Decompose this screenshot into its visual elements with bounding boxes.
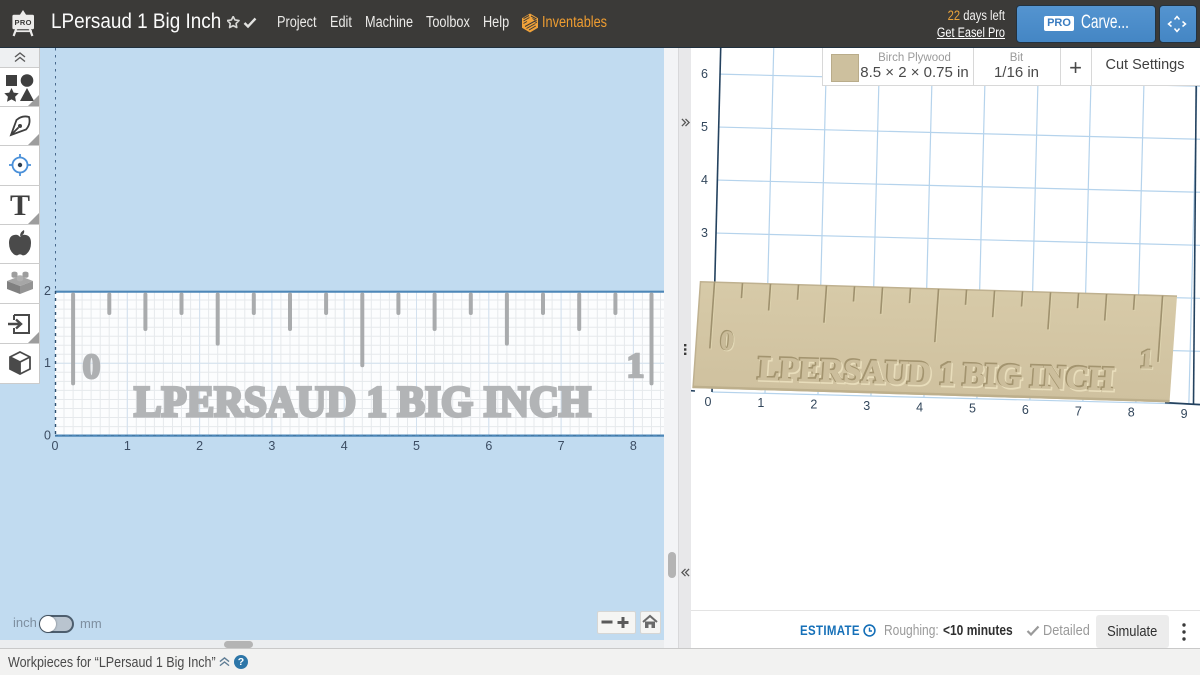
svg-text:2: 2 xyxy=(44,284,51,298)
svg-text:1: 1 xyxy=(1139,344,1155,374)
svg-text:4: 4 xyxy=(701,173,708,187)
svg-text:4: 4 xyxy=(916,400,923,414)
svg-text:4: 4 xyxy=(341,439,348,453)
svg-text:PRO: PRO xyxy=(14,18,31,27)
svg-text:0: 0 xyxy=(719,325,735,355)
svg-text:6: 6 xyxy=(701,67,708,81)
svg-text:3: 3 xyxy=(701,226,708,240)
svg-text:9: 9 xyxy=(1181,407,1188,421)
svg-text:T: T xyxy=(10,189,30,222)
svg-text:6: 6 xyxy=(485,439,492,453)
svg-text:2: 2 xyxy=(196,439,203,453)
svg-text:1: 1 xyxy=(124,439,131,453)
svg-text:1: 1 xyxy=(757,396,764,410)
svg-text:8: 8 xyxy=(1128,406,1135,420)
svg-text:5: 5 xyxy=(701,120,708,134)
svg-text:0: 0 xyxy=(52,439,59,453)
svg-text:5: 5 xyxy=(969,402,976,416)
svg-text:0: 0 xyxy=(705,395,712,409)
svg-text:0: 0 xyxy=(83,347,101,386)
svg-text:3: 3 xyxy=(863,399,870,413)
svg-text:3: 3 xyxy=(268,439,275,453)
svg-text:5: 5 xyxy=(413,439,420,453)
svg-text:LPERSAUD 1 BIG INCH: LPERSAUD 1 BIG INCH xyxy=(134,379,591,426)
svg-text:1: 1 xyxy=(44,356,51,370)
svg-text:7: 7 xyxy=(1075,404,1082,418)
svg-text:0: 0 xyxy=(44,429,51,443)
svg-text:8: 8 xyxy=(630,439,637,453)
svg-text:7: 7 xyxy=(558,439,565,453)
svg-text:6: 6 xyxy=(1022,403,1029,417)
svg-text:1: 1 xyxy=(627,346,645,385)
svg-text:2: 2 xyxy=(810,398,817,412)
